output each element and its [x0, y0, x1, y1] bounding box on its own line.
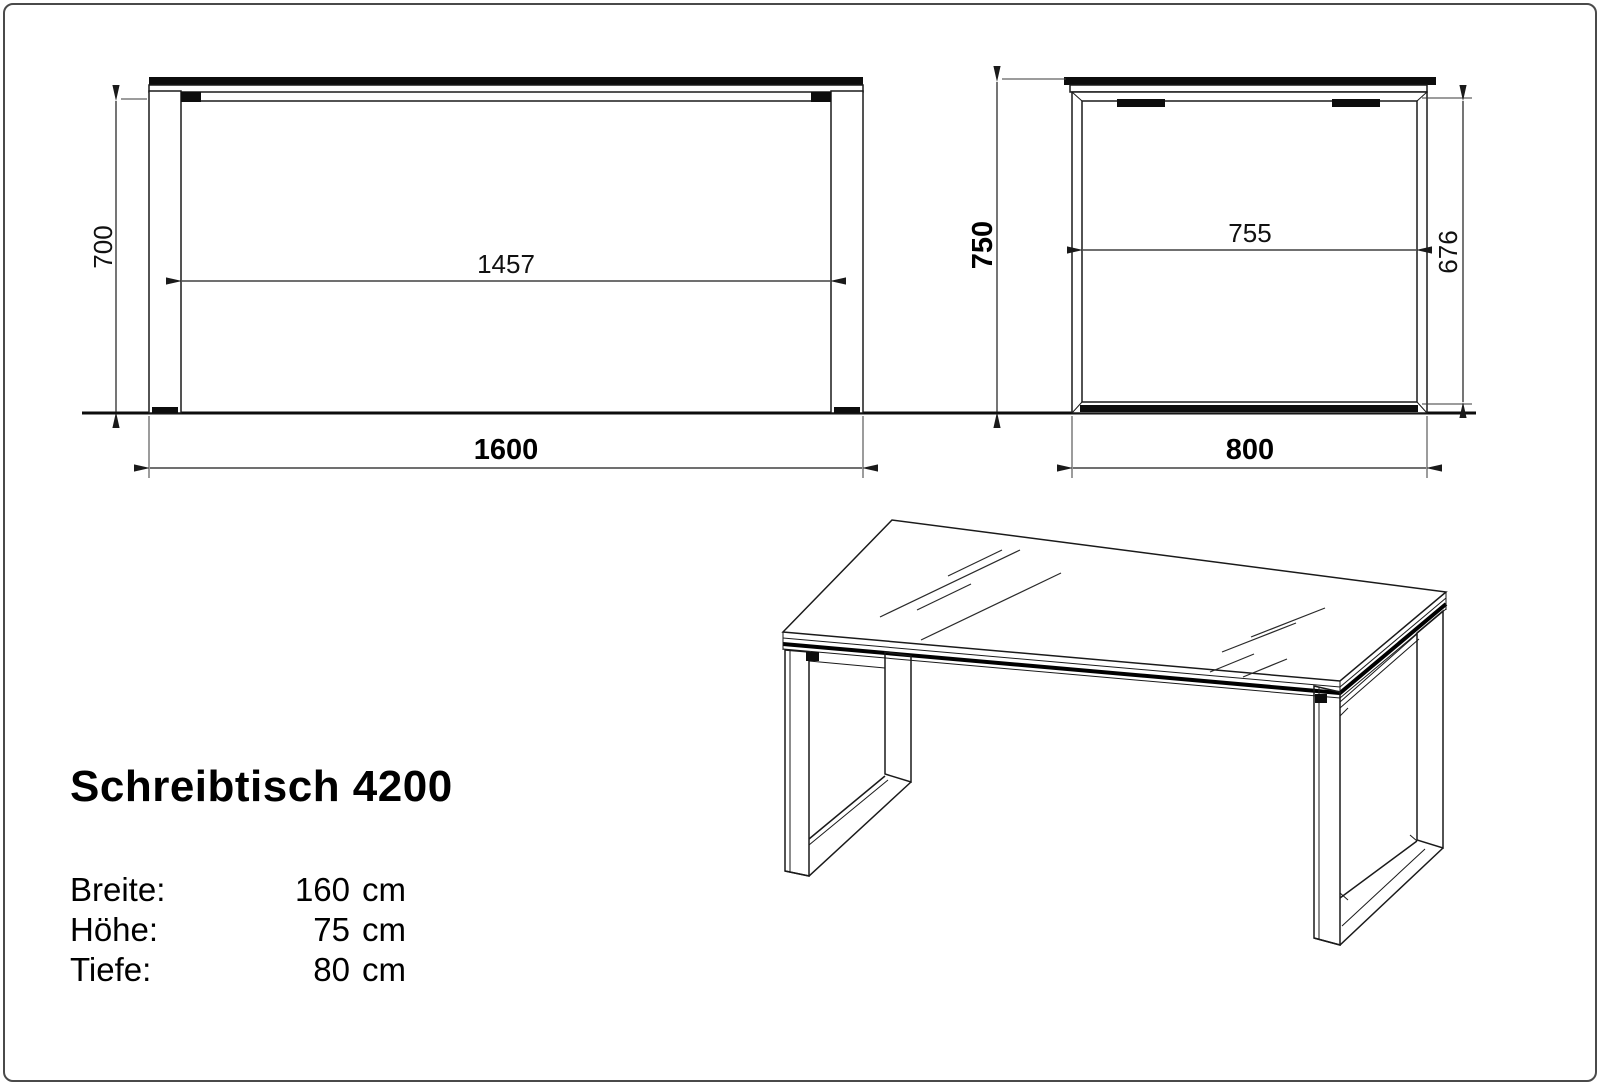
technical-drawing-page: 700 1457 1600	[0, 0, 1600, 1085]
front-tabletop-underside	[149, 85, 863, 92]
front-elevation-view: 700 1457 1600	[88, 77, 863, 478]
front-tabletop-edge	[149, 77, 863, 85]
title-block: Schreibtisch 4200 Breite: 160 cm Höhe: 7…	[70, 762, 453, 990]
spec-row-breite: Breite: 160 cm	[70, 870, 453, 910]
side-leg-frame-inner	[1082, 101, 1417, 402]
dim-676-label: 676	[1433, 230, 1463, 273]
dim-676: 676	[1422, 98, 1472, 404]
front-right-leg	[831, 91, 863, 413]
spec-unit: cm	[362, 870, 406, 910]
spec-table: Breite: 160 cm Höhe: 75 cm Tiefe: 80 cm	[70, 870, 453, 990]
spec-row-tiefe: Tiefe: 80 cm	[70, 950, 453, 990]
dim-1600-label: 1600	[474, 434, 539, 466]
dim-755-label: 755	[1228, 218, 1271, 248]
spec-label: Höhe:	[70, 910, 225, 950]
dim-700-label: 700	[88, 225, 118, 268]
front-right-foot	[834, 407, 860, 413]
dim-700: 700	[88, 99, 147, 412]
side-foot	[1080, 405, 1418, 412]
dim-1457-label: 1457	[477, 249, 535, 279]
perspective-view	[783, 520, 1446, 945]
spec-label: Tiefe:	[70, 950, 225, 990]
front-left-bracket	[181, 92, 201, 102]
side-clip-right	[1332, 99, 1380, 107]
spec-value: 75	[225, 910, 350, 950]
front-right-bracket	[811, 92, 831, 102]
spec-value: 160	[225, 870, 350, 910]
side-clip-left	[1117, 99, 1165, 107]
spec-unit: cm	[362, 950, 406, 990]
side-elevation-view: 750 755 676 800	[967, 77, 1472, 478]
front-left-foot	[152, 407, 178, 413]
spec-row-hoehe: Höhe: 75 cm	[70, 910, 453, 950]
dim-1457: 1457	[182, 249, 830, 281]
spec-label: Breite:	[70, 870, 225, 910]
iso-left-leg	[785, 650, 911, 876]
dim-750-label: 750	[967, 221, 999, 269]
front-left-leg	[149, 91, 181, 413]
side-tabletop-edge	[1064, 77, 1436, 85]
product-model-name: Schreibtisch 4200	[70, 762, 453, 812]
side-tabletop-underside	[1070, 85, 1427, 92]
dim-750: 750	[967, 79, 1066, 412]
dim-800-label: 800	[1226, 434, 1274, 466]
dim-800: 800	[1072, 416, 1427, 478]
spec-value: 80	[225, 950, 350, 990]
spec-unit: cm	[362, 910, 406, 950]
iso-tabletop	[783, 520, 1446, 681]
dim-1600: 1600	[149, 416, 863, 478]
